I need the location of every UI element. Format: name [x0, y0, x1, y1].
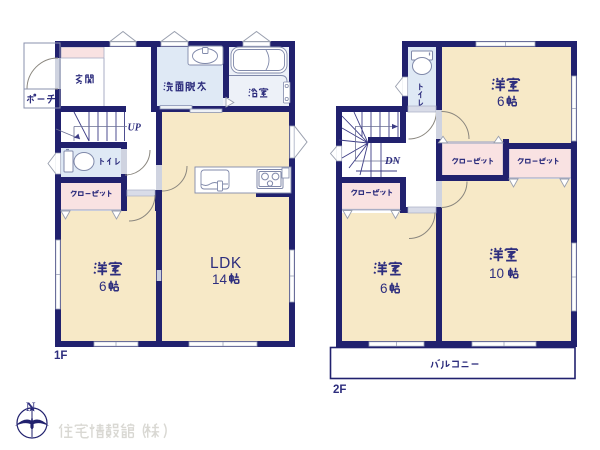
svg-text:10: 10: [489, 266, 504, 281]
svg-text:6: 6: [99, 279, 107, 294]
svg-text:1F: 1F: [54, 350, 67, 362]
svg-text:DN: DN: [384, 156, 401, 167]
svg-text:LDK: LDK: [210, 255, 242, 272]
svg-text:6: 6: [497, 94, 505, 109]
svg-text:UP: UP: [128, 123, 142, 134]
svg-text:14: 14: [212, 272, 228, 287]
svg-text:2F: 2F: [333, 384, 346, 396]
svg-text:N: N: [26, 399, 36, 414]
svg-text:6: 6: [380, 281, 388, 296]
